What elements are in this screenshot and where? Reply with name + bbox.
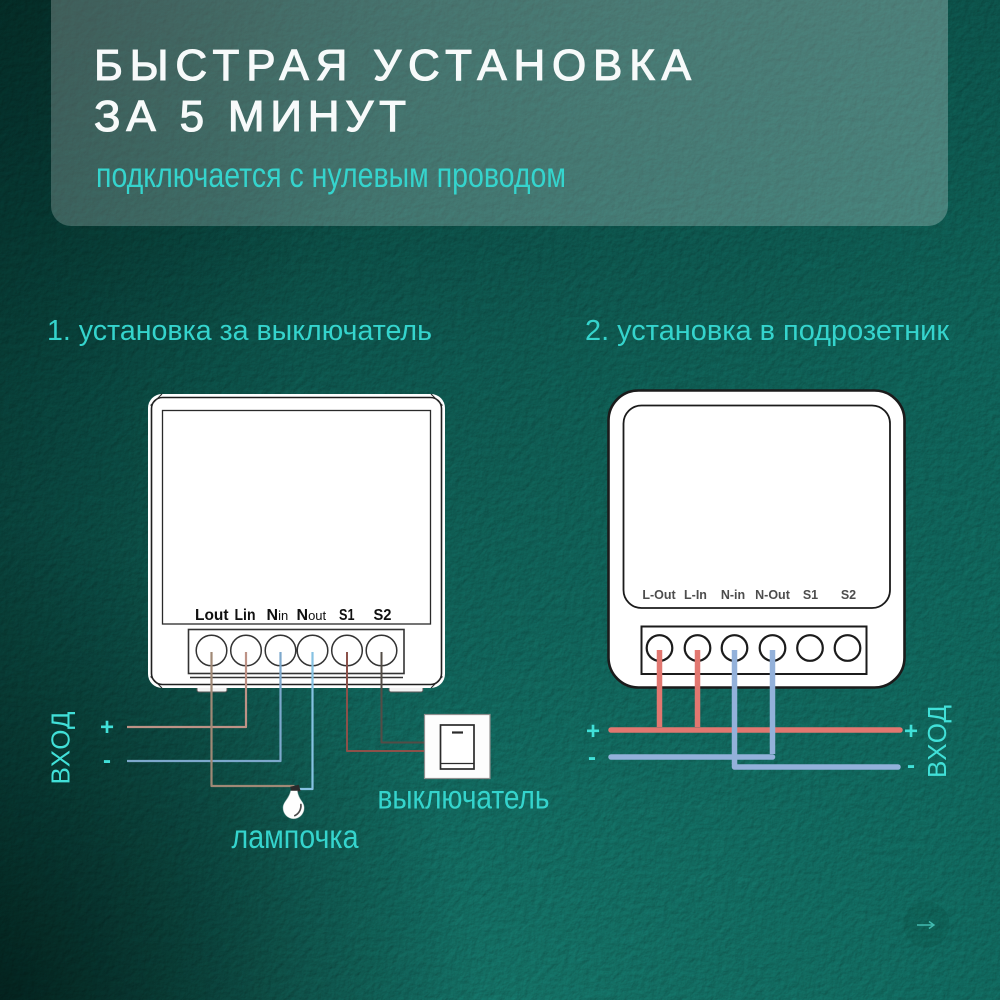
svg-text:+: + (586, 718, 600, 745)
svg-text:1. установка за выключатель: 1. установка за выключатель (47, 315, 432, 347)
svg-text:+: + (904, 718, 918, 745)
svg-text:+: + (100, 714, 114, 741)
svg-text:2. установка в подрозетник: 2. установка в подрозетник (585, 315, 949, 347)
svg-text:Nout: Nout (297, 607, 327, 624)
svg-text:S2: S2 (841, 588, 856, 602)
svg-text:-: - (103, 747, 111, 774)
svg-text:-: - (588, 744, 596, 771)
svg-text:N-in: N-in (721, 588, 745, 602)
svg-text:Nin: Nin (267, 607, 289, 624)
svg-text:Lin: Lin (235, 607, 256, 624)
svg-text:ЗА 5 МИНУТ: ЗА 5 МИНУТ (94, 92, 406, 141)
svg-text:-: - (907, 752, 915, 779)
svg-text:подключается с нулевым проводо: подключается с нулевым проводом (96, 156, 566, 195)
svg-text:S1: S1 (339, 607, 355, 624)
svg-text:ВХОД: ВХОД (922, 704, 952, 778)
svg-text:БЫСТРАЯ УСТАНОВКА: БЫСТРАЯ УСТАНОВКА (94, 41, 692, 90)
svg-text:L-Out: L-Out (642, 588, 676, 602)
svg-text:Lout: Lout (195, 607, 229, 624)
svg-text:L-In: L-In (684, 588, 707, 602)
svg-text:S2: S2 (374, 607, 392, 624)
svg-text:ВХОД: ВХОД (46, 711, 76, 785)
svg-text:S1: S1 (803, 588, 818, 602)
svg-text:выключатель: выключатель (378, 779, 550, 816)
svg-text:N-Out: N-Out (755, 588, 791, 602)
svg-text:лампочка: лампочка (232, 818, 360, 855)
